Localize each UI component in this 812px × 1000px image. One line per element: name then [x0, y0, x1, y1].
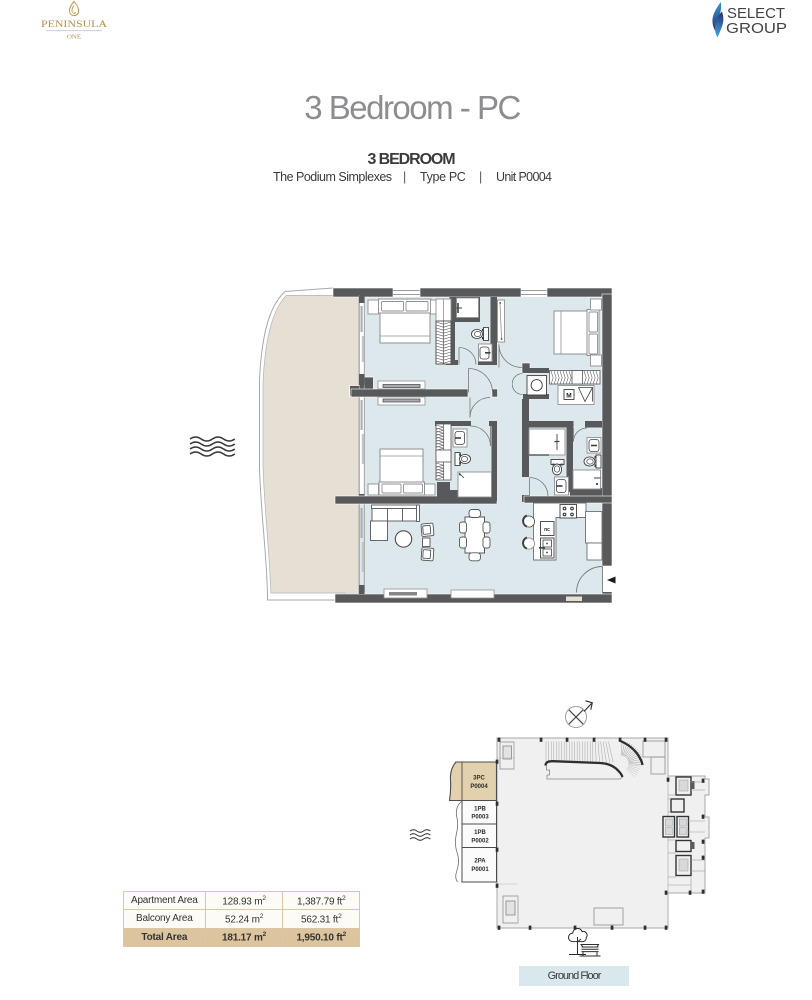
svg-text:1PB: 1PB [474, 830, 486, 836]
svg-text:3PC: 3PC [473, 776, 485, 782]
svg-text:1PB: 1PB [474, 807, 486, 813]
svg-text:2PA: 2PA [474, 859, 486, 865]
svg-text:SELECT: SELECT [727, 6, 785, 22]
svg-text:ONE: ONE [67, 34, 81, 41]
svg-text:M: M [566, 392, 571, 399]
svg-text:P0004: P0004 [470, 784, 488, 790]
svg-text:P0003: P0003 [471, 815, 489, 821]
svg-text:GROUP: GROUP [726, 21, 787, 37]
svg-text:P0001: P0001 [471, 867, 489, 873]
svg-text:PENINSULA: PENINSULA [41, 19, 108, 29]
svg-text:nc: nc [544, 527, 550, 533]
svg-text:P0002: P0002 [471, 839, 489, 845]
